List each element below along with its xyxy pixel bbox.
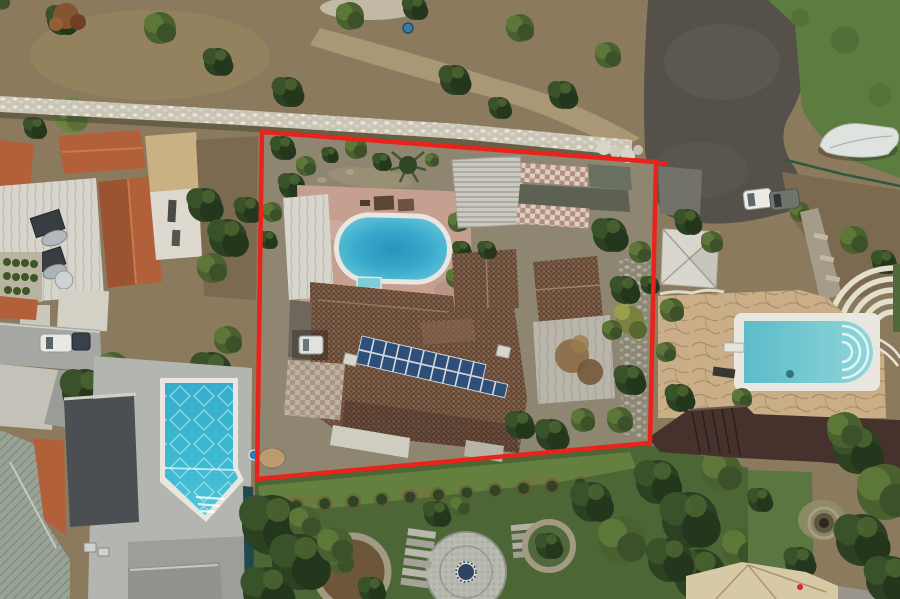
red-object	[797, 584, 803, 590]
shrub	[376, 494, 387, 505]
roof-junction-box	[343, 353, 358, 367]
patio-emblem	[458, 564, 474, 580]
shrub	[518, 483, 529, 494]
diving-board	[724, 343, 744, 353]
shrub	[433, 489, 444, 500]
dark-car	[72, 333, 90, 350]
boulder	[259, 448, 285, 468]
solar-panel	[471, 362, 486, 378]
concrete-slab	[588, 164, 632, 190]
shrub	[405, 492, 416, 503]
white-car-carport	[299, 336, 323, 354]
aerial-photo	[0, 0, 900, 599]
white-van	[40, 334, 72, 352]
shrub	[348, 496, 359, 507]
white-terrace-piece	[57, 289, 109, 332]
blue-barrel	[403, 23, 413, 33]
roof-junction-box-2	[496, 345, 511, 359]
solar-panel	[493, 382, 508, 398]
aerial-photo-canvas	[0, 0, 900, 599]
white-slatted-pergola	[452, 156, 526, 228]
shrub	[319, 498, 330, 509]
water-tank	[55, 271, 73, 289]
ac-unit-2	[98, 548, 109, 556]
subject-property	[249, 132, 660, 479]
neighbor-pool-water	[744, 321, 873, 383]
shrub	[490, 485, 501, 496]
ac-unit	[84, 543, 96, 552]
tan-courtyard	[145, 132, 202, 192]
shrub	[547, 481, 558, 492]
